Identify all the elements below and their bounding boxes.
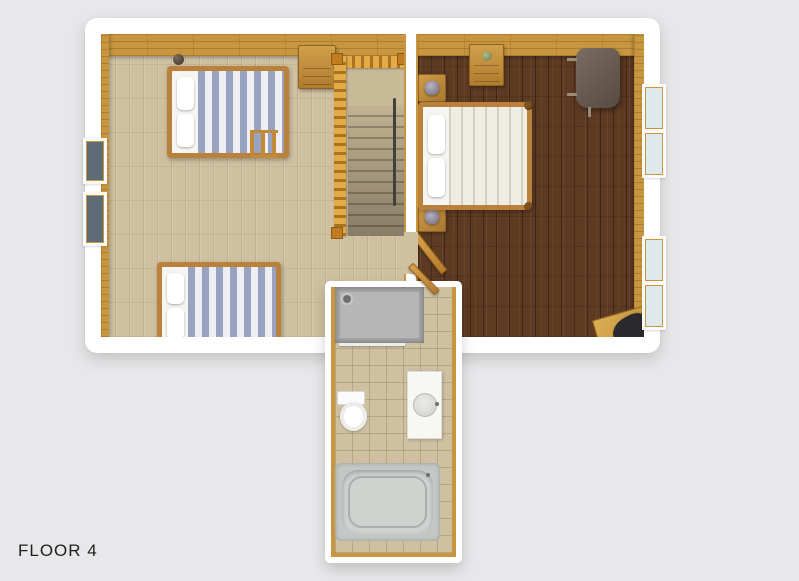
sink (413, 393, 437, 417)
pillow (177, 114, 194, 147)
wall-paneling-top (101, 34, 404, 56)
nightstand-1 (418, 74, 446, 102)
bed-pillow-zone (162, 267, 188, 337)
bed-post (524, 202, 533, 211)
dresser-with-plant (469, 44, 504, 86)
twin-bed-2 (157, 262, 281, 337)
shower-floor (340, 292, 419, 338)
window-right-3 (642, 236, 666, 284)
table-lamp-icon (425, 210, 440, 225)
newel-post (397, 53, 404, 65)
pillow (428, 158, 445, 197)
stair-railing-left (334, 56, 346, 236)
bed-post (524, 101, 533, 110)
table-leg (567, 58, 577, 61)
shower-head-icon (343, 295, 351, 303)
toilet (340, 402, 367, 431)
newel-post (331, 53, 343, 65)
bed-pillow-zone (172, 71, 198, 153)
stair-handrail (393, 98, 396, 206)
window-right-4 (642, 282, 666, 330)
bathtub-basin (348, 476, 427, 528)
window-left-2 (83, 192, 107, 246)
pillow (167, 308, 184, 337)
floor-label: FLOOR 4 (18, 541, 98, 561)
pillow (167, 273, 184, 304)
decor-object (173, 54, 184, 65)
window-left-1 (83, 138, 107, 184)
plant-icon (482, 51, 492, 61)
bathroom-wall-trim (331, 553, 456, 557)
window-right-1 (642, 84, 666, 132)
faucet-icon (435, 402, 439, 406)
shower-stall (335, 287, 424, 343)
staircase (334, 56, 404, 236)
tub-faucet-icon (426, 473, 430, 477)
striped-duvet (188, 267, 276, 337)
wall-paneling-left (101, 34, 109, 337)
table-leg (588, 107, 591, 117)
vanity (407, 371, 442, 439)
master-bed (418, 102, 532, 210)
table-leg (567, 93, 577, 96)
floor-plan-canvas: FLOOR 4 (0, 0, 799, 581)
bunk-ladder (250, 130, 278, 158)
bed-pillow-zone (423, 107, 449, 205)
bathtub (335, 463, 440, 541)
bathroom-wall-trim (452, 287, 456, 557)
table-lamp-icon (425, 81, 440, 96)
master-bedroom-door (418, 232, 448, 275)
dresser-small (298, 45, 336, 89)
pillow (428, 115, 445, 154)
bathroom (325, 281, 462, 563)
striped-duvet (449, 107, 527, 205)
dark-table (576, 48, 620, 108)
newel-post (331, 227, 343, 239)
bathroom-floor (335, 287, 452, 553)
window-right-2 (642, 130, 666, 178)
pillow (177, 77, 194, 110)
shower-glass-door (339, 343, 405, 346)
